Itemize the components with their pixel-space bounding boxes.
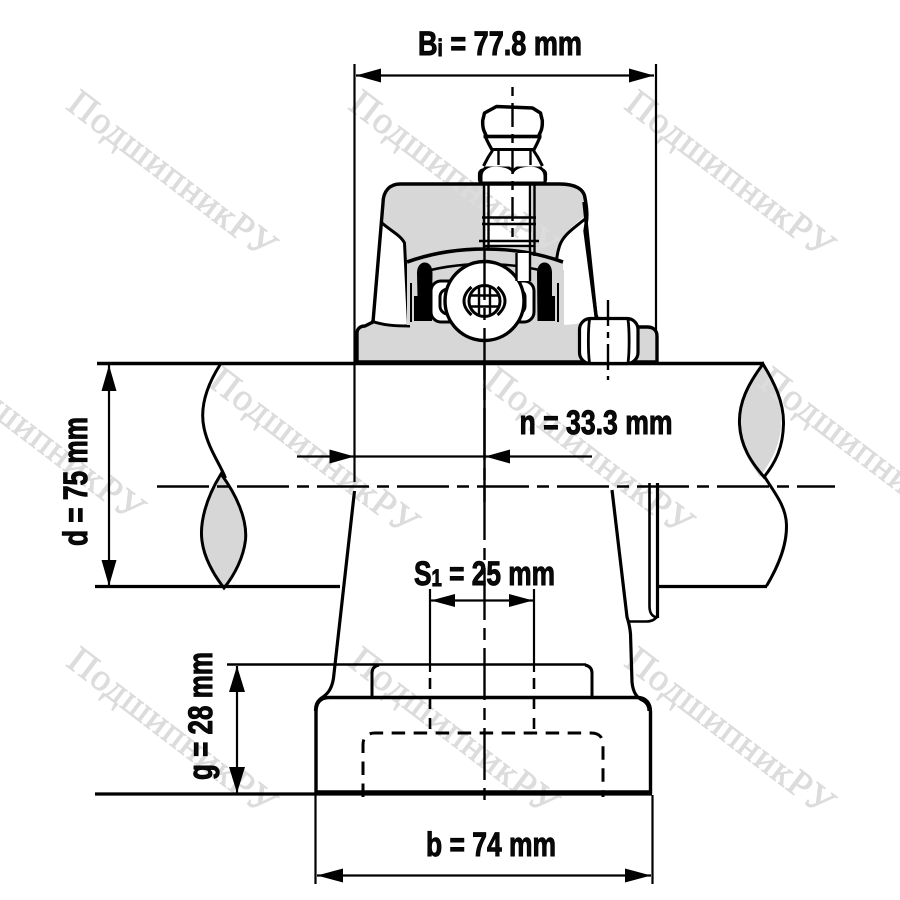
svg-text:Bi = 77.8 mm: Bi = 77.8 mm	[418, 25, 582, 63]
svg-text:b = 74 mm: b = 74 mm	[426, 826, 556, 864]
svg-text:d = 75 mm: d = 75 mm	[57, 417, 95, 546]
svg-text:g = 28 mm: g = 28 mm	[182, 652, 220, 780]
svg-text:n = 33.3 mm: n = 33.3 mm	[520, 404, 673, 442]
